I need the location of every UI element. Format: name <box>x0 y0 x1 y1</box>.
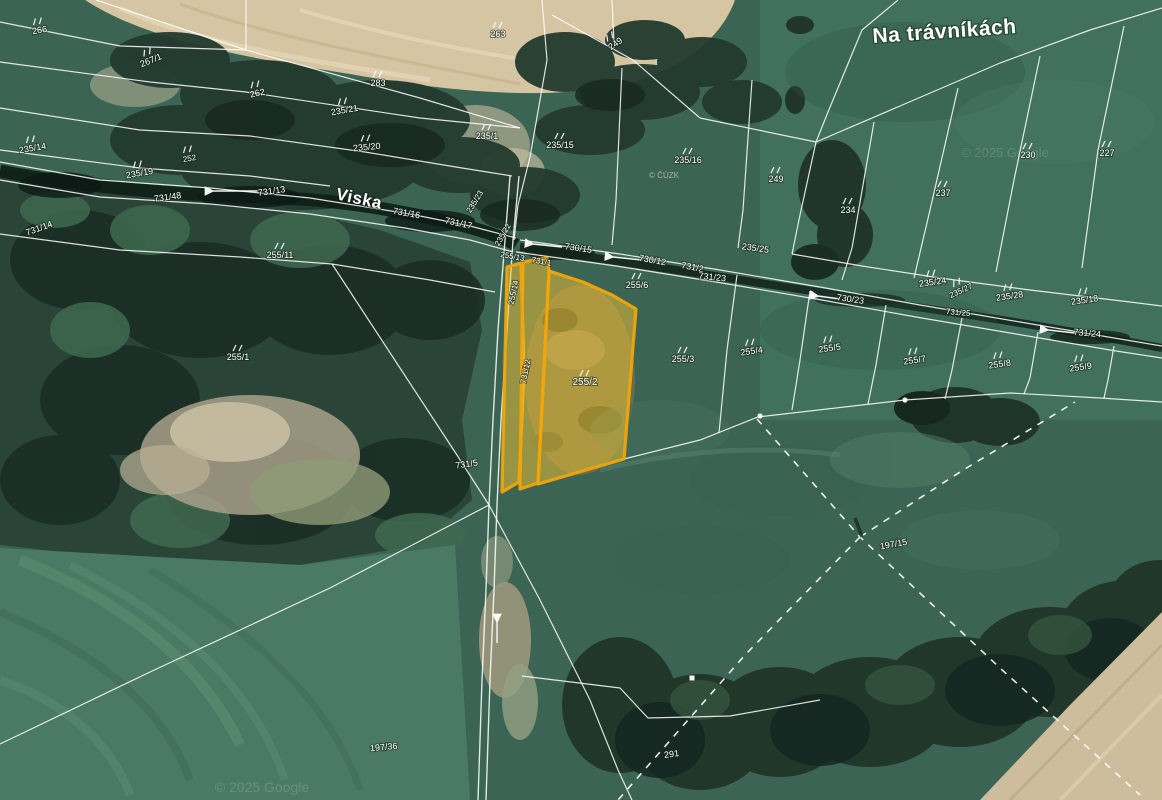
parcel-number-label: 263 <box>490 29 505 39</box>
parcel-number-label: 227 <box>1099 148 1114 158</box>
cadastral-map-view[interactable]: 266267/1262252283263249235/21235/14235/1… <box>0 0 1162 800</box>
parcel-number-label: 235/16 <box>674 155 702 165</box>
parcel-number-label: 291 <box>663 748 679 760</box>
copyright-watermark: © 2025 Google <box>215 779 310 795</box>
parcel-number-label: 255/1 <box>227 352 250 362</box>
parcel-number-label: 255/11 <box>267 250 294 260</box>
parcel-number-label: 235/1 <box>476 131 499 141</box>
parcel-number-label: 237 <box>935 188 950 198</box>
parcel-number-label: 283 <box>370 78 385 88</box>
parcel-label-group: 291 <box>663 748 679 760</box>
parcel-number-label: 235/15 <box>546 140 574 150</box>
parcel-number-label: 234 <box>840 205 855 215</box>
parcel-number-label: 255/6 <box>626 280 649 290</box>
survey-square-marker <box>690 676 695 681</box>
parcel-number-label: 255/2 <box>572 377 597 388</box>
copyright-watermark: © 2025 Google <box>961 145 1049 160</box>
parcel-number-label: 255/3 <box>672 354 695 364</box>
survey-point-marker <box>902 397 907 402</box>
satellite-map-canvas[interactable]: 266267/1262252283263249235/21235/14235/1… <box>0 0 1162 800</box>
parcel-number-label: 249 <box>768 174 783 184</box>
copyright-watermark: © ČÚZK <box>649 171 680 180</box>
survey-point-marker <box>757 413 762 418</box>
